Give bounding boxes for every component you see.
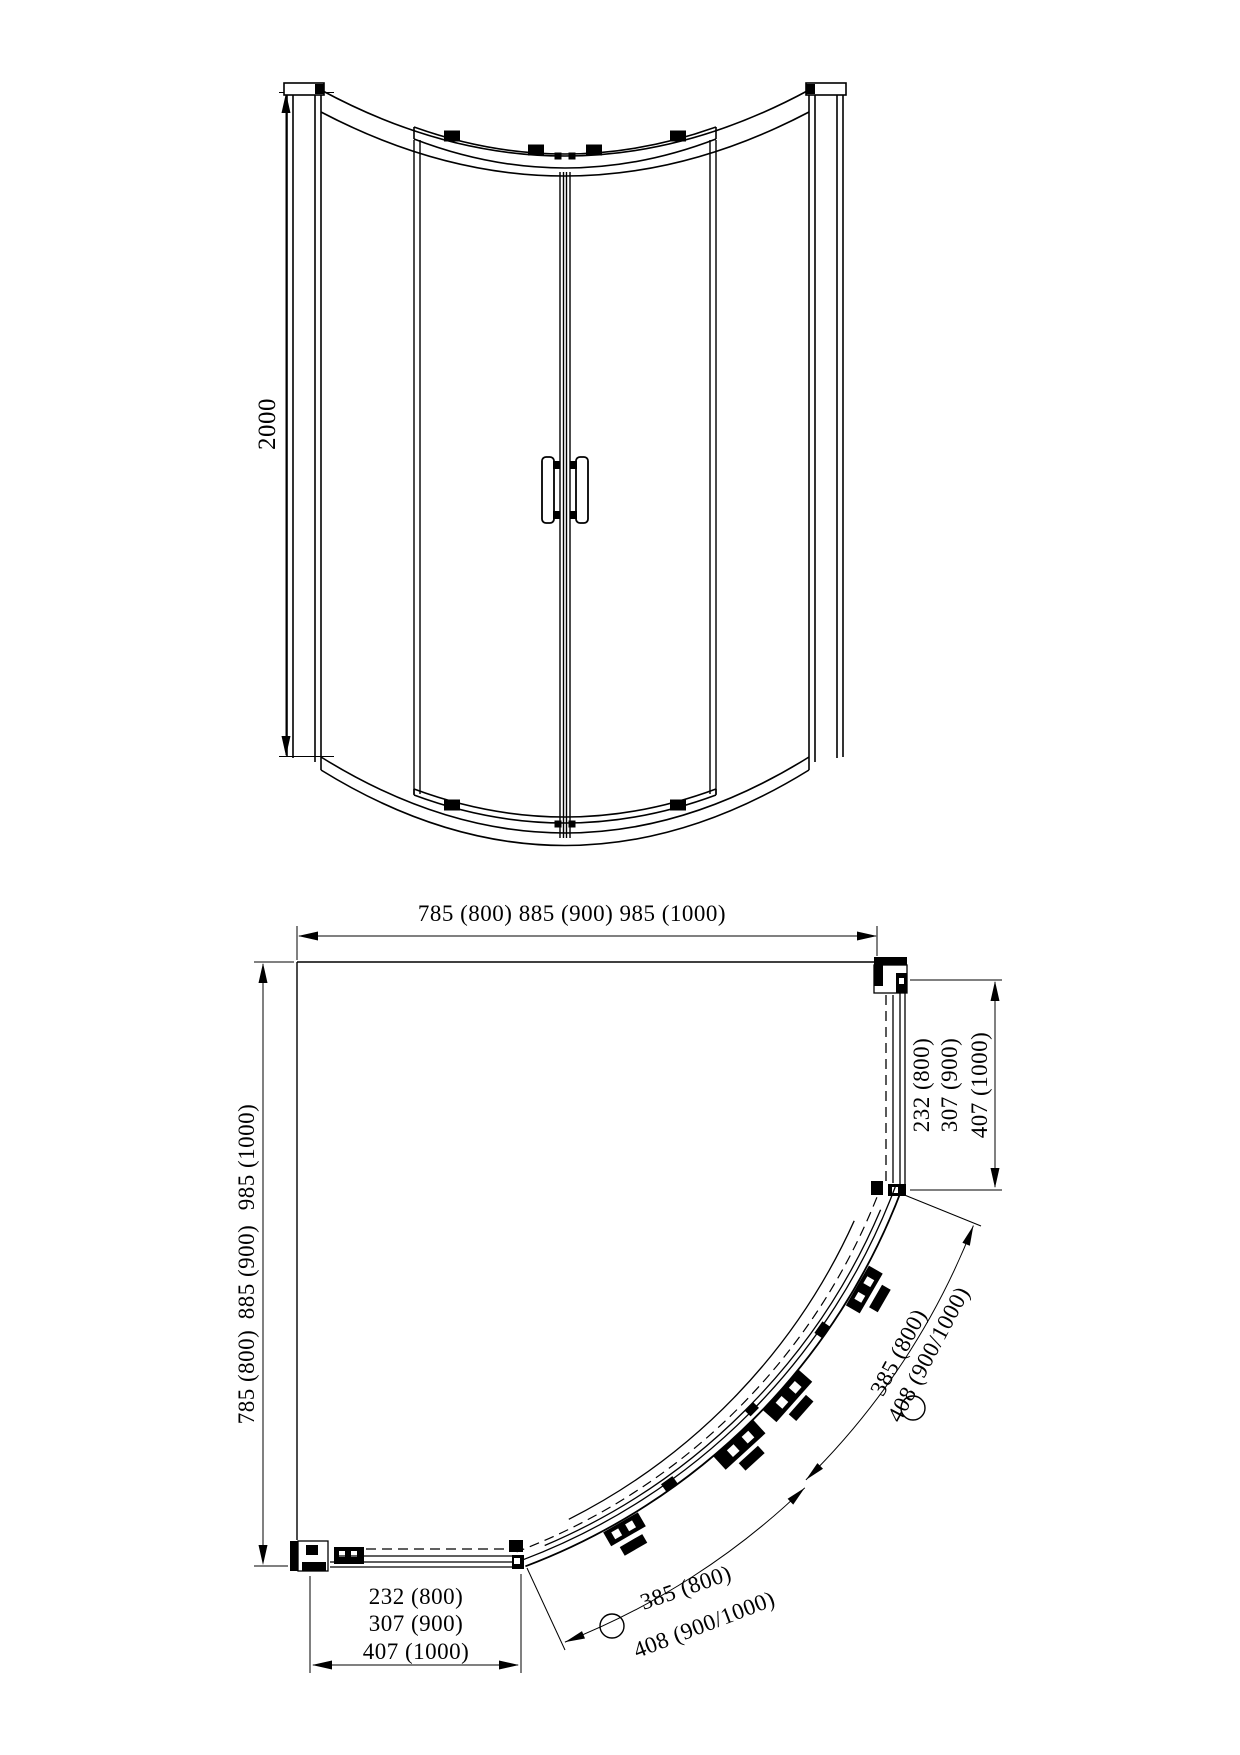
left-door-handle xyxy=(542,457,554,523)
arrow-up-icon xyxy=(259,963,268,983)
roller-cluster-2 xyxy=(763,1370,812,1422)
top-header-rail xyxy=(321,90,809,176)
bottom-track-rail xyxy=(321,757,809,846)
depth-dimension: 985 (1000) 885 (900) 785 (800) xyxy=(234,962,294,1566)
width-dimension: 785 (800) 885 (900) 985 (1000) xyxy=(297,901,877,960)
wall-edges xyxy=(297,962,874,1540)
door-overlap-bumper xyxy=(745,1402,759,1416)
arrow-right-icon xyxy=(499,1661,519,1670)
front-elevation-view: 2000 xyxy=(254,83,846,846)
height-dimension: 2000 xyxy=(254,93,334,757)
bottom-fixed-panel xyxy=(290,1540,524,1571)
left-wall-profile xyxy=(284,83,324,770)
bottom-panel-dimension-label-307: 307 (900) xyxy=(369,1611,464,1636)
technical-drawing-canvas: 2000 xyxy=(0,0,1240,1755)
right-wall-profile xyxy=(806,83,846,770)
depth-dimension-label-785: 785 (800) xyxy=(234,1330,259,1425)
arrow-up-icon xyxy=(282,93,291,113)
right-door-handle xyxy=(576,457,588,523)
glass-panel-frames xyxy=(414,140,716,838)
right-arc-dimension: 385 (800) 408 (900/1000) xyxy=(806,1194,981,1480)
roller-cluster-3 xyxy=(714,1420,766,1470)
right-fixed-panel xyxy=(871,957,907,1196)
arrow-down-icon xyxy=(991,1168,1000,1188)
right-panel-dimension-label-232: 232 (800) xyxy=(909,1038,934,1133)
depth-dimension-label-985: 985 (1000) xyxy=(234,1104,259,1211)
drawing-page: 2000 xyxy=(0,0,1240,1755)
track-stop-block xyxy=(661,1476,678,1491)
bottom-panel-dimension-label-407: 407 (1000) xyxy=(363,1639,470,1664)
right-panel-dimension-label-307: 307 (900) xyxy=(937,1038,962,1133)
bottom-panel-dimension-label-232: 232 (800) xyxy=(369,1584,464,1609)
right-panel-dimension: 232 (800) 307 (900) 407 (1000) xyxy=(909,980,1002,1190)
arrow-down-icon xyxy=(282,736,291,756)
arrow-up-icon xyxy=(991,981,1000,1001)
arrow-left-icon xyxy=(298,932,318,941)
height-dimension-label: 2000 xyxy=(254,398,281,450)
curved-door-track xyxy=(517,1182,902,1566)
plan-view: 785 (800) 885 (900) 985 (1000) 985 (1000… xyxy=(234,901,1002,1673)
arrow-left-icon xyxy=(312,1661,332,1670)
door-runner-centerline xyxy=(517,1182,883,1551)
door-handles xyxy=(542,457,588,523)
right-panel-dimension-label-407: 407 (1000) xyxy=(967,1032,992,1139)
width-dimension-label: 785 (800) 885 (900) 985 (1000) xyxy=(418,901,726,926)
track-stop-block xyxy=(814,1321,829,1338)
arc-arrow-icon xyxy=(962,1226,973,1246)
arc-arrow-icon xyxy=(565,1631,585,1642)
curved-door-rollers xyxy=(603,1266,891,1556)
bottom-panel-dimension: 232 (800) 307 (900) 407 (1000) xyxy=(310,1574,521,1673)
depth-dimension-label-885: 885 (900) xyxy=(234,1225,259,1320)
arrow-right-icon xyxy=(857,932,877,941)
arrow-down-icon xyxy=(259,1545,268,1565)
bottom-arc-dimension: 385 (800) 408 (900/1000) xyxy=(527,1488,805,1663)
